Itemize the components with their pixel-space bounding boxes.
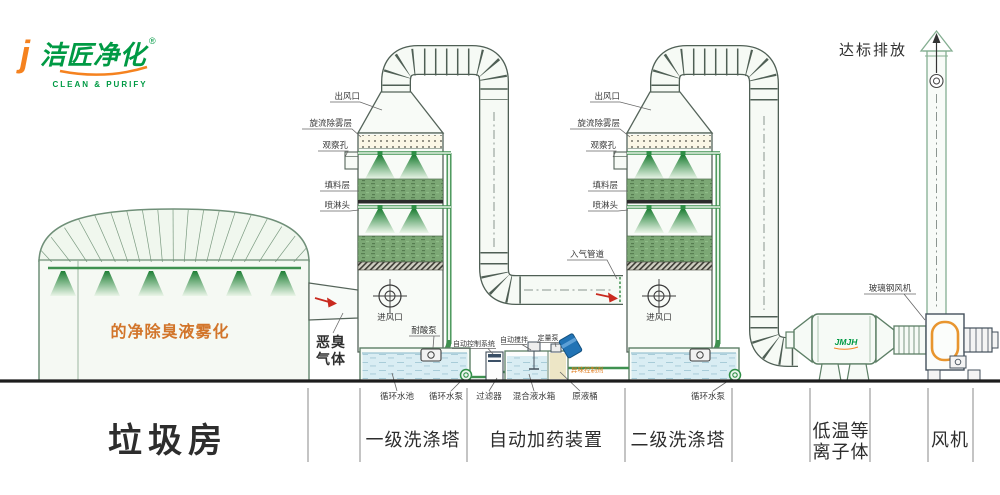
pump2-label: 循环水泵	[691, 391, 726, 401]
pump1-label: 循环水泵	[429, 391, 464, 401]
logo-tagline: CLEAN & PURIFY	[52, 80, 147, 89]
section-fan: 风机	[931, 430, 969, 450]
exhaust-stack	[921, 31, 952, 316]
odor-agent-label: 异味控制剂	[571, 365, 604, 374]
section-garbage-room: 垃圾房	[108, 422, 228, 460]
metering-pump-label: 定量泵	[538, 333, 559, 342]
tower1-pump-label: 耐酸泵	[411, 325, 437, 335]
tower1-body	[345, 92, 472, 381]
tower1-viewport-label: 观察孔	[322, 140, 348, 150]
tower2-packing-label: 填料层	[592, 180, 618, 190]
tower1-inlet-label: 进风口	[377, 312, 403, 322]
tower2-viewport-label: 观察孔	[590, 140, 616, 150]
logo-registered-mark: ®	[149, 36, 156, 46]
diagram-svg: JMJH	[0, 0, 1000, 495]
inlet-duct-label: 入气管道	[570, 249, 605, 259]
stirrer-label: 自动搅拌	[500, 335, 528, 344]
tower2-demister-label: 旋流除雾层	[577, 118, 620, 128]
odor-gas-label-line2: 气体	[315, 351, 346, 367]
flow-sensor-icon	[930, 75, 943, 88]
plasma-unit: JMJH	[786, 314, 926, 381]
tower2-inlet-label: 进风口	[646, 312, 672, 322]
logo-brand-text: 洁匠净化	[40, 40, 150, 70]
tower1-outlet-label: 出风口	[334, 91, 360, 101]
tank-brand-logo: JMJH	[835, 337, 859, 347]
tower2-body	[614, 92, 741, 381]
section-plasma-line1: 低温等	[813, 421, 870, 441]
control-system-label: 自动控制系统	[453, 339, 495, 348]
garbage-room	[16, 195, 330, 381]
tower1-packing-label: 填料层	[324, 180, 350, 190]
process-diagram: JMJH	[0, 0, 1000, 495]
frp-fan-label: 玻璃钢风机	[869, 283, 912, 293]
tower2-outlet-label: 出风口	[594, 91, 620, 101]
tower2-sprayhead-label: 喷淋头	[592, 200, 618, 210]
mix-tank-label: 混合液水箱	[513, 391, 556, 401]
logo-j-icon: j	[16, 33, 31, 74]
odor-gas-label-line1: 恶臭	[316, 334, 346, 350]
section-tower1: 一级洗涤塔	[366, 430, 461, 450]
fan-unit	[926, 314, 998, 380]
tower1-sprayhead-label: 喷淋头	[324, 200, 350, 210]
emission-label: 达标排放	[839, 42, 907, 59]
section-tower2: 二级洗涤塔	[631, 430, 726, 450]
room-spray-text: 的净除臭液雾化	[110, 322, 229, 341]
stock-barrel-label: 原液桶	[572, 391, 598, 401]
section-dosing: 自动加药装置	[489, 430, 603, 450]
filter-label: 过滤器	[476, 391, 502, 401]
pool1-label: 循环水池	[380, 391, 415, 401]
tower1-demister-label: 旋流除雾层	[309, 118, 352, 128]
arched-roof	[39, 209, 309, 262]
section-plasma-line2: 离子体	[813, 442, 870, 462]
brand-logo: j 洁匠净化 ® CLEAN & PURIFY	[16, 33, 156, 89]
